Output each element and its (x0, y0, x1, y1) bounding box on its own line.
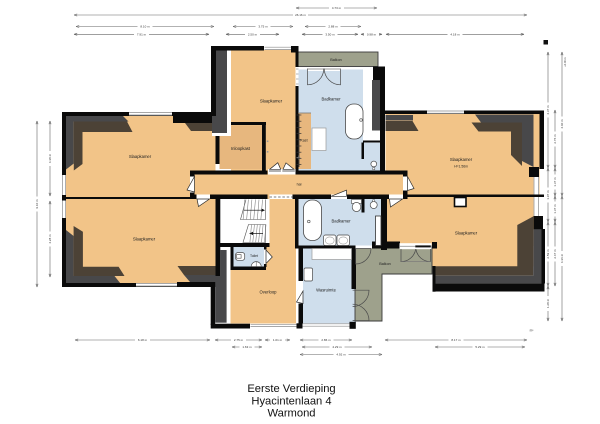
svg-text:+0.00 m: +0.00 m (563, 57, 567, 66)
svg-text:8.17 m: 8.17 m (451, 338, 461, 342)
svg-text:4.36 m: 4.36 m (560, 253, 564, 263)
svg-text:m²: m² (530, 329, 534, 333)
svg-text:2.76 m: 2.76 m (553, 134, 557, 144)
svg-text:1.63 m: 1.63 m (242, 345, 252, 349)
svg-text:4.28 m: 4.28 m (48, 234, 52, 244)
svg-text:4.73 m: 4.73 m (332, 6, 342, 10)
svg-text:Toilet: Toilet (250, 254, 258, 258)
svg-text:Slaapkamer: Slaapkamer (450, 157, 473, 162)
svg-text:4.40 m: 4.40 m (560, 119, 564, 129)
svg-text:4.29 m: 4.29 m (332, 345, 342, 349)
svg-text:Kast: Kast (300, 139, 307, 143)
svg-text:Slaapkamer: Slaapkamer (260, 99, 283, 104)
svg-text:Hyacintenlaan 4: Hyacintenlaan 4 (251, 396, 331, 408)
svg-text:2.86 m: 2.86 m (321, 338, 331, 342)
svg-text:Inloopkast: Inloopkast (231, 146, 251, 151)
svg-text:Warmond: Warmond (267, 408, 315, 420)
svg-text:1.28 m: 1.28 m (546, 298, 550, 308)
svg-text:5.29 m: 5.29 m (475, 345, 485, 349)
svg-text:Wasruimte: Wasruimte (316, 287, 337, 292)
svg-text:2.75 m: 2.75 m (234, 338, 244, 342)
svg-text:4.92 m: 4.92 m (336, 353, 346, 357)
svg-text:2.59 m: 2.59 m (546, 249, 550, 259)
svg-text:3.75 m: 3.75 m (258, 25, 268, 29)
svg-text:Balkon: Balkon (330, 58, 342, 62)
svg-text:9.10 m: 9.10 m (35, 199, 39, 209)
svg-text:Eerste Verdieping: Eerste Verdieping (247, 383, 335, 395)
svg-text:3.50 m: 3.50 m (325, 32, 335, 36)
svg-text:2.47 m: 2.47 m (553, 249, 557, 259)
svg-text:4.38 m: 4.38 m (48, 153, 52, 163)
svg-text:1.37 m: 1.37 m (553, 177, 557, 187)
svg-text:7.91 m: 7.91 m (137, 32, 147, 36)
svg-text:6.18 m: 6.18 m (138, 338, 148, 342)
svg-text:Slaapkamer: Slaapkamer (133, 237, 156, 242)
svg-text:0.98 m: 0.98 m (367, 32, 377, 36)
svg-text:Slaapkamer: Slaapkamer (455, 230, 478, 235)
svg-text:8.10 m: 8.10 m (140, 25, 150, 29)
svg-text:H=1.56m: H=1.56m (454, 164, 468, 168)
svg-text:2.50 m: 2.50 m (248, 32, 258, 36)
svg-text:1.97 m: 1.97 m (546, 190, 550, 200)
svg-text:26.16 m: 26.16 m (295, 13, 306, 17)
svg-text:Badkamer: Badkamer (321, 97, 341, 102)
svg-text:4.37 m: 4.37 m (546, 105, 550, 115)
svg-text:Badkamer: Badkamer (331, 218, 351, 223)
svg-text:Balkon: Balkon (379, 262, 391, 266)
svg-text:2.88 m: 2.88 m (328, 25, 338, 29)
svg-text:1.01 m: 1.01 m (273, 338, 283, 342)
svg-text:hal: hal (297, 182, 302, 186)
svg-text:1.37 m: 1.37 m (553, 204, 557, 214)
svg-text:Slaapkamer: Slaapkamer (129, 154, 152, 159)
svg-text:Overloop: Overloop (260, 289, 278, 294)
svg-text:4.18 m: 4.18 m (450, 32, 460, 36)
